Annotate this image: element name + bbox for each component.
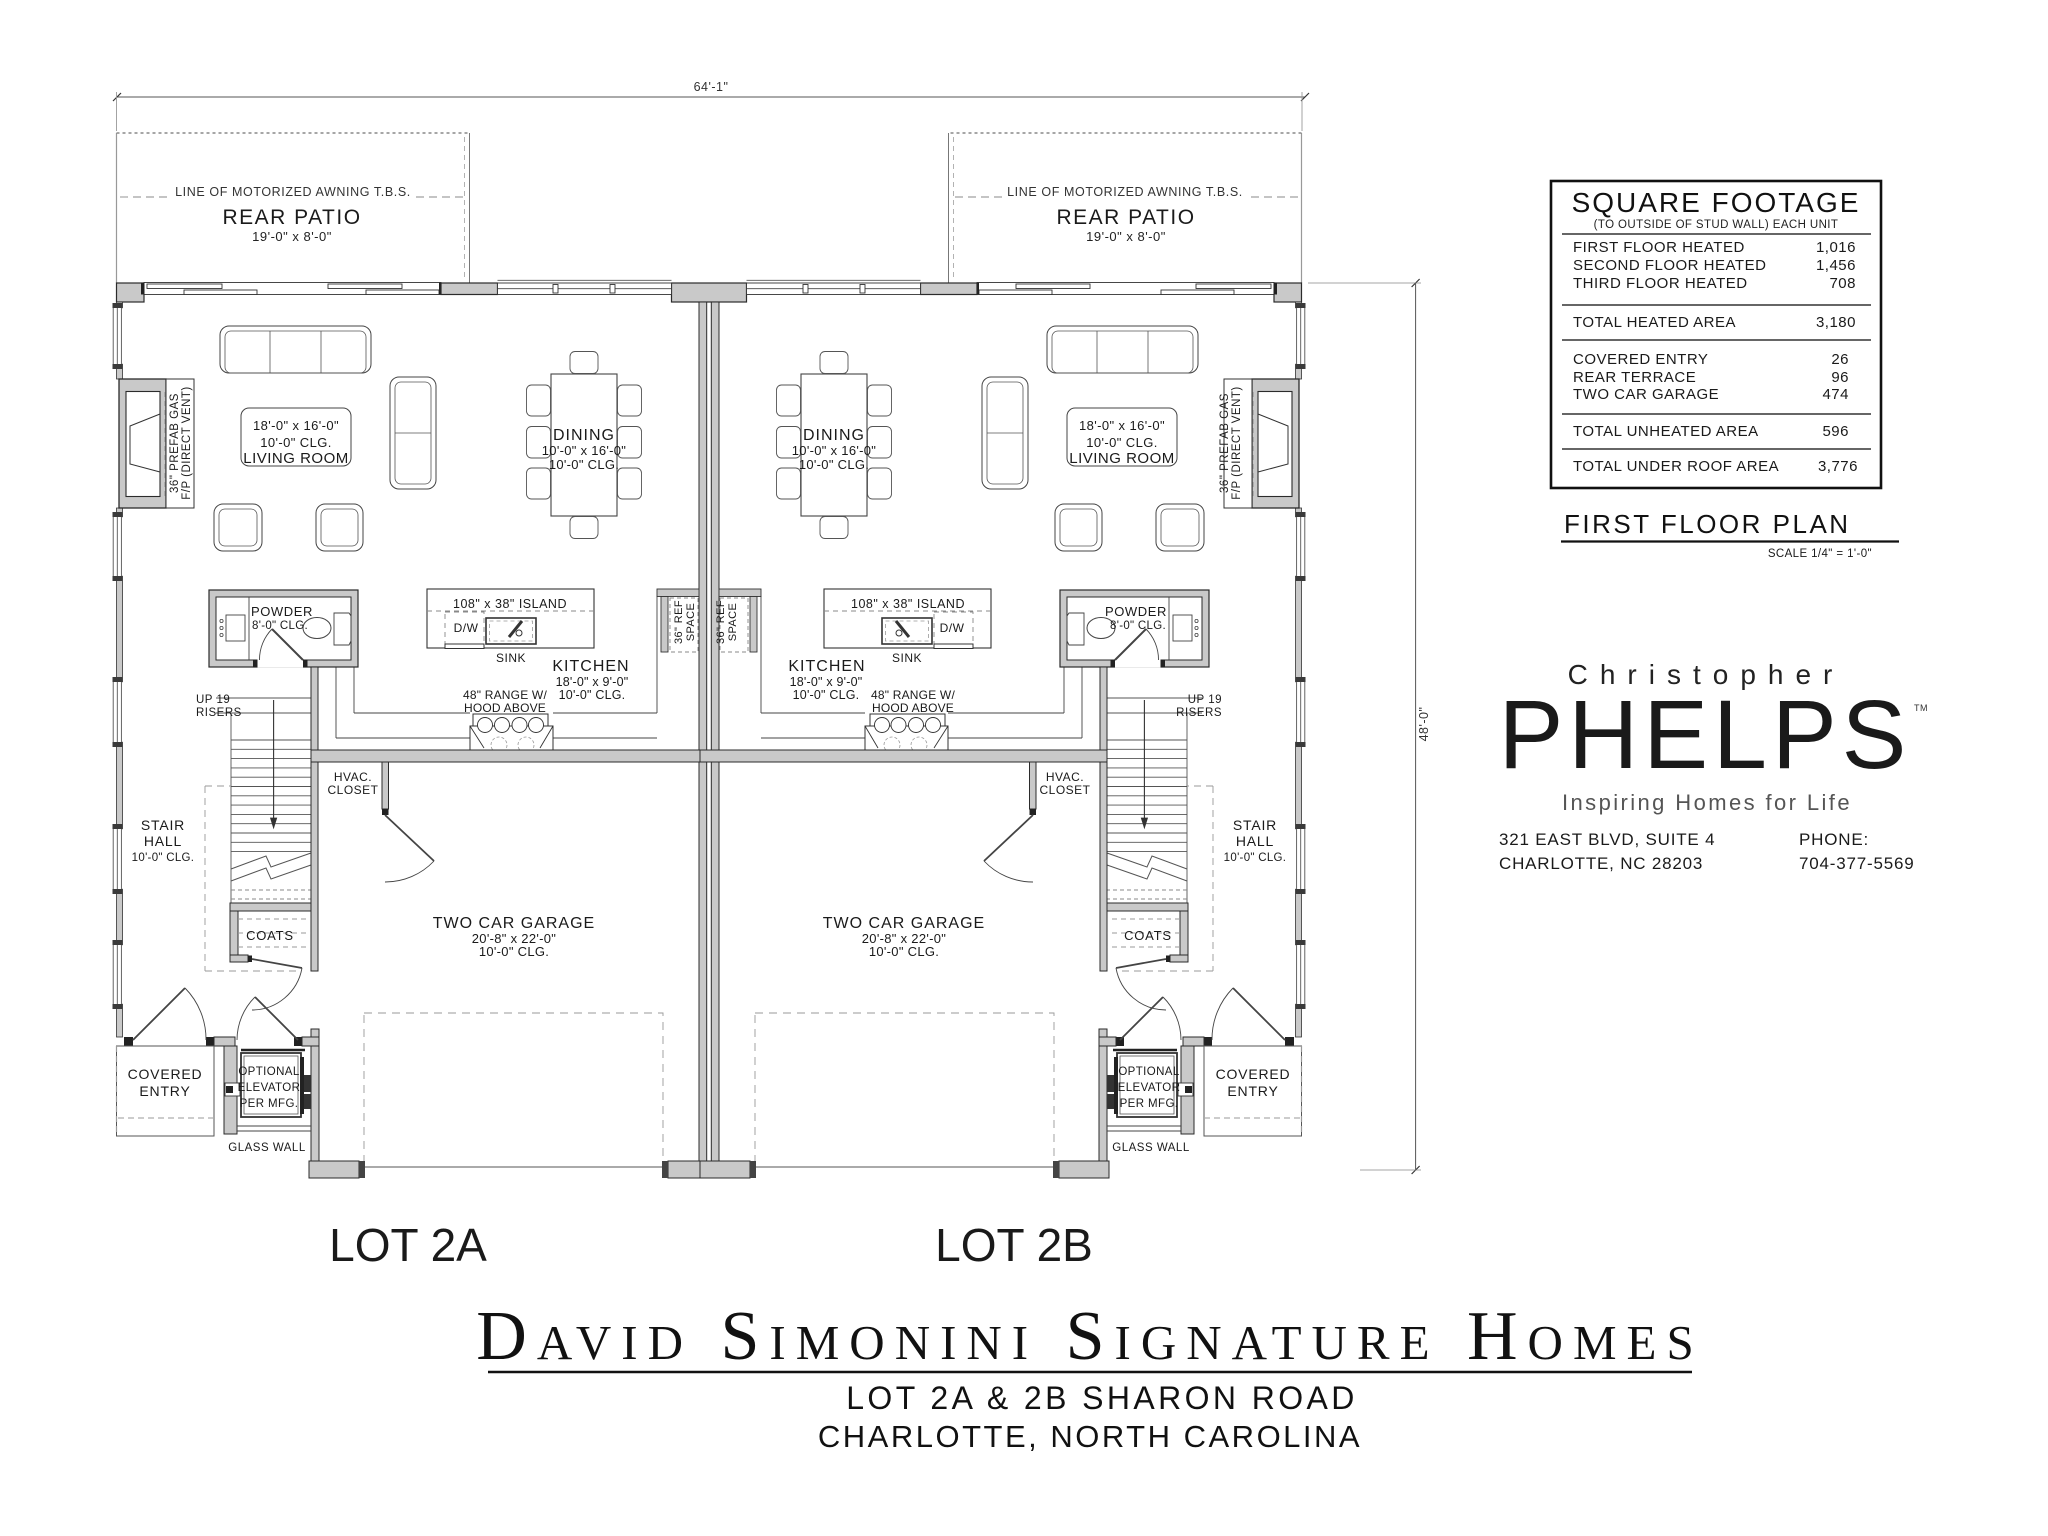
- svg-text:UP 19: UP 19: [196, 694, 230, 706]
- svg-text:3,180: 3,180: [1816, 314, 1856, 331]
- svg-text:CHARLOTTE, NC 28203: CHARLOTTE, NC 28203: [1499, 854, 1703, 873]
- svg-text:TWO CAR GARAGE: TWO CAR GARAGE: [433, 915, 595, 932]
- svg-text:PER MFG.: PER MFG.: [1120, 1098, 1179, 1110]
- svg-text:ELEVATOR: ELEVATOR: [238, 1082, 301, 1094]
- svg-text:ENTRY: ENTRY: [139, 1083, 190, 1099]
- svg-text:CHARLOTTE, NORTH CAROLINA: CHARLOTTE, NORTH CAROLINA: [818, 1419, 1362, 1454]
- svg-text:321 EAST BLVD, SUITE 4: 321 EAST BLVD, SUITE 4: [1499, 830, 1715, 849]
- svg-text:HALL: HALL: [144, 833, 182, 849]
- svg-text:CLOSET: CLOSET: [327, 783, 378, 797]
- svg-text:18'-0" x 9'-0": 18'-0" x 9'-0": [556, 675, 629, 689]
- svg-text:708: 708: [1829, 275, 1856, 292]
- svg-text:18'-0" x 9'-0": 18'-0" x 9'-0": [790, 675, 863, 689]
- svg-text:36" REF: 36" REF: [715, 600, 727, 644]
- svg-text:LIVING ROOM: LIVING ROOM: [1069, 450, 1175, 467]
- svg-text:10'-0" CLG.: 10'-0" CLG.: [1086, 435, 1157, 450]
- svg-text:SECOND FLOOR HEATED: SECOND FLOOR HEATED: [1573, 257, 1766, 274]
- svg-text:64'-1": 64'-1": [694, 80, 729, 94]
- svg-text:LINE OF MOTORIZED AWNING T.B.S: LINE OF MOTORIZED AWNING T.B.S.: [175, 185, 411, 199]
- svg-text:SINK: SINK: [496, 651, 526, 665]
- svg-text:HVAC.: HVAC.: [1046, 770, 1084, 784]
- svg-text:1,016: 1,016: [1816, 239, 1856, 256]
- svg-text:TM: TM: [1914, 703, 1928, 713]
- svg-text:PHONE:: PHONE:: [1799, 830, 1869, 849]
- svg-text:8'-0" CLG.: 8'-0" CLG.: [252, 620, 308, 632]
- svg-text:474: 474: [1822, 386, 1849, 403]
- svg-text:CLOSET: CLOSET: [1039, 783, 1090, 797]
- svg-text:SINK: SINK: [892, 651, 922, 665]
- svg-text:COVERED: COVERED: [1216, 1066, 1291, 1082]
- svg-text:36" PREFAB GAS: 36" PREFAB GAS: [1219, 393, 1231, 493]
- svg-text:LIVING ROOM: LIVING ROOM: [243, 450, 349, 467]
- svg-text:GLASS WALL: GLASS WALL: [228, 1142, 306, 1154]
- svg-text:SPACE: SPACE: [727, 603, 739, 641]
- svg-text:HVAC.: HVAC.: [334, 770, 372, 784]
- svg-text:THIRD FLOOR HEATED: THIRD FLOOR HEATED: [1573, 275, 1748, 292]
- svg-text:1,456: 1,456: [1816, 257, 1856, 274]
- svg-text:SCALE 1/4" = 1'-0": SCALE 1/4" = 1'-0": [1768, 548, 1872, 560]
- svg-text:FIRST FLOOR PLAN: FIRST FLOOR PLAN: [1564, 509, 1851, 539]
- svg-text:COATS: COATS: [246, 928, 294, 943]
- svg-text:10'-0" CLG.: 10'-0" CLG.: [479, 944, 549, 959]
- svg-text:HALL: HALL: [1236, 833, 1274, 849]
- svg-text:STAIR: STAIR: [1233, 817, 1277, 833]
- svg-text:10'-0" x 16'-0": 10'-0" x 16'-0": [542, 443, 627, 458]
- svg-text:96: 96: [1831, 369, 1849, 386]
- svg-text:10'-0" CLG.: 10'-0" CLG.: [799, 457, 869, 472]
- svg-text:3,776: 3,776: [1818, 458, 1858, 475]
- svg-text:DINING: DINING: [553, 427, 615, 444]
- svg-text:10'-0" CLG.: 10'-0" CLG.: [793, 688, 860, 702]
- svg-text:108" x 38" ISLAND: 108" x 38" ISLAND: [453, 597, 567, 611]
- svg-text:10'-0" CLG.: 10'-0" CLG.: [132, 852, 195, 864]
- svg-text:F/P (DIRECT VENT): F/P (DIRECT VENT): [1231, 386, 1243, 500]
- svg-text:LINE OF MOTORIZED AWNING T.B.S: LINE OF MOTORIZED AWNING T.B.S.: [1007, 185, 1243, 199]
- svg-text:SPACE: SPACE: [685, 603, 697, 641]
- svg-text:RISERS: RISERS: [1176, 707, 1222, 719]
- svg-text:DINING: DINING: [803, 427, 865, 444]
- svg-text:19'-0" x 8'-0": 19'-0" x 8'-0": [1086, 229, 1166, 244]
- svg-text:8'-0" CLG.: 8'-0" CLG.: [1110, 620, 1166, 632]
- svg-text:48'-0": 48'-0": [1417, 707, 1431, 742]
- svg-text:LOT 2A & 2B SHARON ROAD: LOT 2A & 2B SHARON ROAD: [846, 1380, 1358, 1416]
- svg-text:SQUARE FOOTAGE: SQUARE FOOTAGE: [1572, 187, 1861, 218]
- svg-text:KITCHEN: KITCHEN: [788, 658, 865, 675]
- svg-text:ELEVATOR: ELEVATOR: [1118, 1082, 1181, 1094]
- svg-text:COVERED ENTRY: COVERED ENTRY: [1573, 351, 1708, 368]
- svg-text:TWO CAR GARAGE: TWO CAR GARAGE: [1573, 386, 1719, 403]
- svg-text:OPTIONAL: OPTIONAL: [1118, 1066, 1180, 1078]
- svg-text:TOTAL UNHEATED AREA: TOTAL UNHEATED AREA: [1573, 423, 1759, 440]
- svg-text:POWDER: POWDER: [251, 604, 313, 619]
- svg-text:18'-0" x 16'-0": 18'-0" x 16'-0": [1079, 418, 1165, 433]
- svg-text:ENTRY: ENTRY: [1227, 1083, 1278, 1099]
- svg-text:REAR TERRACE: REAR TERRACE: [1573, 369, 1696, 386]
- svg-text:COATS: COATS: [1124, 928, 1172, 943]
- svg-text:D/W: D/W: [454, 621, 479, 635]
- svg-text:David Simonini Signature Homes: David Simonini Signature Homes: [476, 1298, 1703, 1375]
- svg-text:(TO OUTSIDE OF STUD WALL) EACH: (TO OUTSIDE OF STUD WALL) EACH UNIT: [1594, 219, 1839, 231]
- svg-text:48" RANGE W/: 48" RANGE W/: [463, 688, 547, 702]
- svg-text:PHELPS: PHELPS: [1499, 680, 1912, 789]
- svg-text:36" REF: 36" REF: [673, 600, 685, 644]
- svg-text:COVERED: COVERED: [128, 1066, 203, 1082]
- svg-text:10'-0" CLG.: 10'-0" CLG.: [260, 435, 331, 450]
- svg-text:26: 26: [1831, 351, 1849, 368]
- svg-text:REAR PATIO: REAR PATIO: [222, 206, 361, 229]
- svg-text:GLASS WALL: GLASS WALL: [1112, 1142, 1190, 1154]
- svg-text:108" x 38" ISLAND: 108" x 38" ISLAND: [851, 597, 965, 611]
- svg-text:TWO CAR GARAGE: TWO CAR GARAGE: [823, 915, 985, 932]
- svg-text:19'-0" x 8'-0": 19'-0" x 8'-0": [252, 229, 332, 244]
- svg-text:STAIR: STAIR: [141, 817, 185, 833]
- svg-text:KITCHEN: KITCHEN: [552, 658, 629, 675]
- svg-text:UP 19: UP 19: [1188, 694, 1222, 706]
- svg-text:REAR PATIO: REAR PATIO: [1056, 206, 1195, 229]
- svg-text:OPTIONAL: OPTIONAL: [238, 1066, 300, 1078]
- svg-text:PER MFG.: PER MFG.: [240, 1098, 299, 1110]
- svg-text:TOTAL UNDER ROOF AREA: TOTAL UNDER ROOF AREA: [1573, 458, 1779, 475]
- svg-text:POWDER: POWDER: [1105, 604, 1167, 619]
- svg-text:Inspiring Homes for Life: Inspiring Homes for Life: [1562, 790, 1852, 815]
- svg-text:48" RANGE W/: 48" RANGE W/: [871, 688, 955, 702]
- svg-text:LOT 2A: LOT 2A: [329, 1219, 487, 1271]
- svg-text:F/P (DIRECT VENT): F/P (DIRECT VENT): [181, 386, 193, 500]
- svg-text:10'-0" CLG.: 10'-0" CLG.: [559, 688, 626, 702]
- svg-text:TOTAL HEATED AREA: TOTAL HEATED AREA: [1573, 314, 1736, 331]
- svg-text:10'-0" CLG.: 10'-0" CLG.: [869, 944, 939, 959]
- svg-text:10'-0" CLG.: 10'-0" CLG.: [1224, 852, 1287, 864]
- svg-text:704-377-5569: 704-377-5569: [1799, 854, 1914, 873]
- svg-text:10'-0" CLG.: 10'-0" CLG.: [549, 457, 619, 472]
- svg-text:18'-0" x 16'-0": 18'-0" x 16'-0": [253, 418, 339, 433]
- svg-text:596: 596: [1822, 423, 1849, 440]
- svg-text:36" PREFAB GAS: 36" PREFAB GAS: [169, 393, 181, 493]
- svg-text:HOOD ABOVE: HOOD ABOVE: [872, 701, 954, 715]
- svg-text:10'-0" x 16'-0": 10'-0" x 16'-0": [792, 443, 877, 458]
- svg-text:D/W: D/W: [940, 621, 965, 635]
- svg-text:LOT 2B: LOT 2B: [935, 1219, 1093, 1271]
- svg-text:FIRST FLOOR HEATED: FIRST FLOOR HEATED: [1573, 239, 1745, 256]
- svg-text:HOOD ABOVE: HOOD ABOVE: [464, 701, 546, 715]
- svg-text:RISERS: RISERS: [196, 707, 242, 719]
